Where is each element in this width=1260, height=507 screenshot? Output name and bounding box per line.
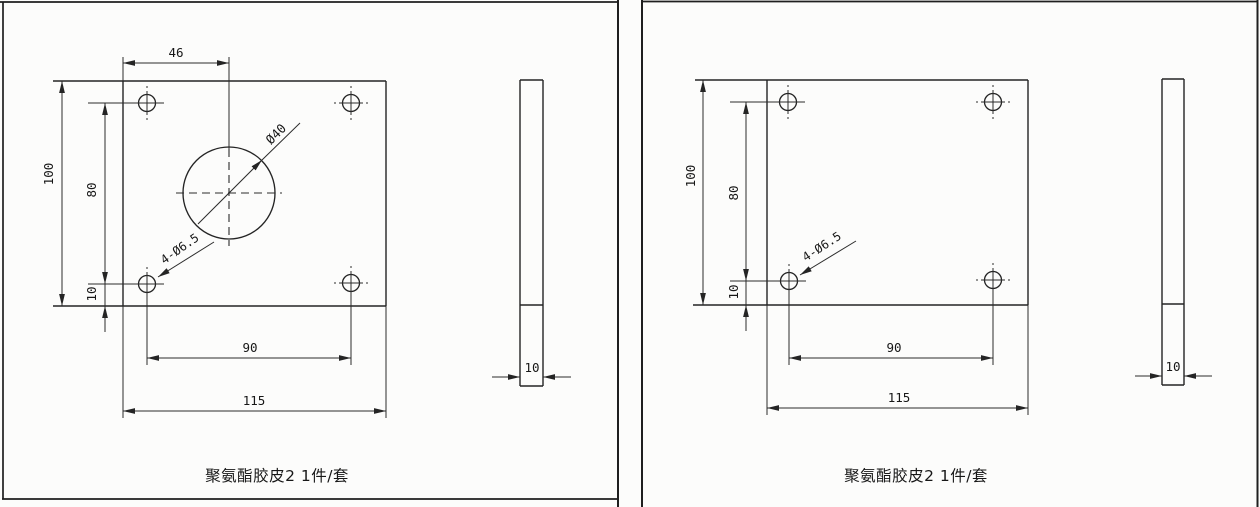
dim-label-10: 10: [726, 284, 741, 299]
dim-label-80: 80: [84, 182, 99, 197]
dim-label-115: 115: [243, 393, 266, 408]
dim-label-100: 100: [683, 165, 698, 188]
corner-hole-top-right: [976, 85, 1010, 119]
dim-hole-edge-offset: 10: [84, 284, 105, 332]
center-hole: Ø40: [176, 121, 300, 246]
dim-hole-span-horizontal: 90: [147, 291, 351, 365]
dim-label-80: 80: [726, 185, 741, 200]
corner-hole-top-right: [334, 86, 368, 120]
dim-plate-height: 100: [683, 80, 703, 305]
plate-side-view: 10: [1135, 79, 1212, 385]
plate-side-view: 10: [492, 80, 571, 386]
dim-thickness: 10: [1135, 359, 1212, 376]
dim-label-thickness-10: 10: [1165, 359, 1180, 374]
plate-front-view: 4-Ø6.5 100 80 10: [683, 80, 1028, 415]
scanned-drawing-page: Ø40 4-Ø6.5 46 100 80: [0, 0, 1260, 507]
diameter-leader: [198, 160, 262, 224]
dim-label-90: 90: [886, 340, 901, 355]
dim-hole-span-vertical: 80: [726, 102, 804, 281]
right-sheet-border: [642, 0, 1258, 507]
dim-hole-edge-offset: 10: [726, 281, 746, 331]
dim-hole-center-from-left: 46: [123, 45, 229, 63]
part-caption-right: 聚氨酯胶皮2 1件/套: [844, 467, 988, 485]
dim-label-corner-holes: 4-Ø6.5: [800, 229, 844, 264]
dim-hole-span-horizontal: 90: [789, 288, 993, 365]
dim-thickness: 10: [492, 360, 571, 377]
dim-label-46: 46: [168, 45, 183, 60]
part-caption-left: 聚氨酯胶皮2 1件/套: [205, 467, 349, 485]
dim-label-115: 115: [888, 390, 911, 405]
plate-front-view: Ø40 4-Ø6.5 46 100 80: [41, 45, 386, 418]
engineering-drawing-canvas: Ø40 4-Ø6.5 46 100 80: [0, 0, 1260, 507]
dim-plate-width: 115: [123, 393, 386, 411]
dim-label-center-hole-diameter: Ø40: [263, 121, 290, 148]
dim-label-corner-holes: 4-Ø6.5: [158, 231, 202, 267]
left-sheet-border: [0, 0, 618, 507]
dim-label-thickness-10: 10: [524, 360, 539, 375]
left-sheet: Ø40 4-Ø6.5 46 100 80: [0, 0, 618, 507]
corner-holes-callout: 4-Ø6.5: [158, 231, 214, 277]
dim-label-10: 10: [84, 286, 99, 301]
dim-label-100: 100: [41, 163, 56, 186]
corner-holes-callout: 4-Ø6.5: [800, 229, 856, 275]
dim-label-90: 90: [242, 340, 257, 355]
right-sheet: 4-Ø6.5 100 80 10: [642, 0, 1258, 507]
dim-plate-width: 115: [767, 390, 1028, 408]
dim-plate-height: 100: [41, 81, 62, 306]
